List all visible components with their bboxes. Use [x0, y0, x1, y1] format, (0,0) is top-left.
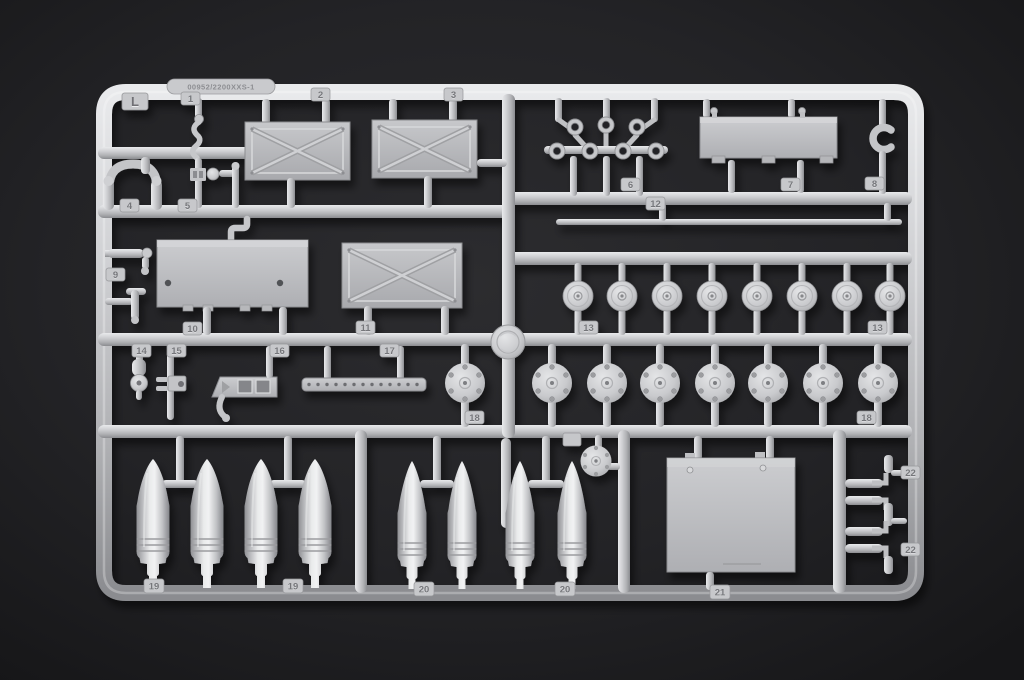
sprue-photo-canvas: 00952/2200XXS-1 L L 11 22 33 44 55 66 77…	[0, 0, 1024, 680]
sprue-photo: 00952/2200XXS-1 L L 11 22 33 44 55 66 77…	[0, 0, 1024, 680]
